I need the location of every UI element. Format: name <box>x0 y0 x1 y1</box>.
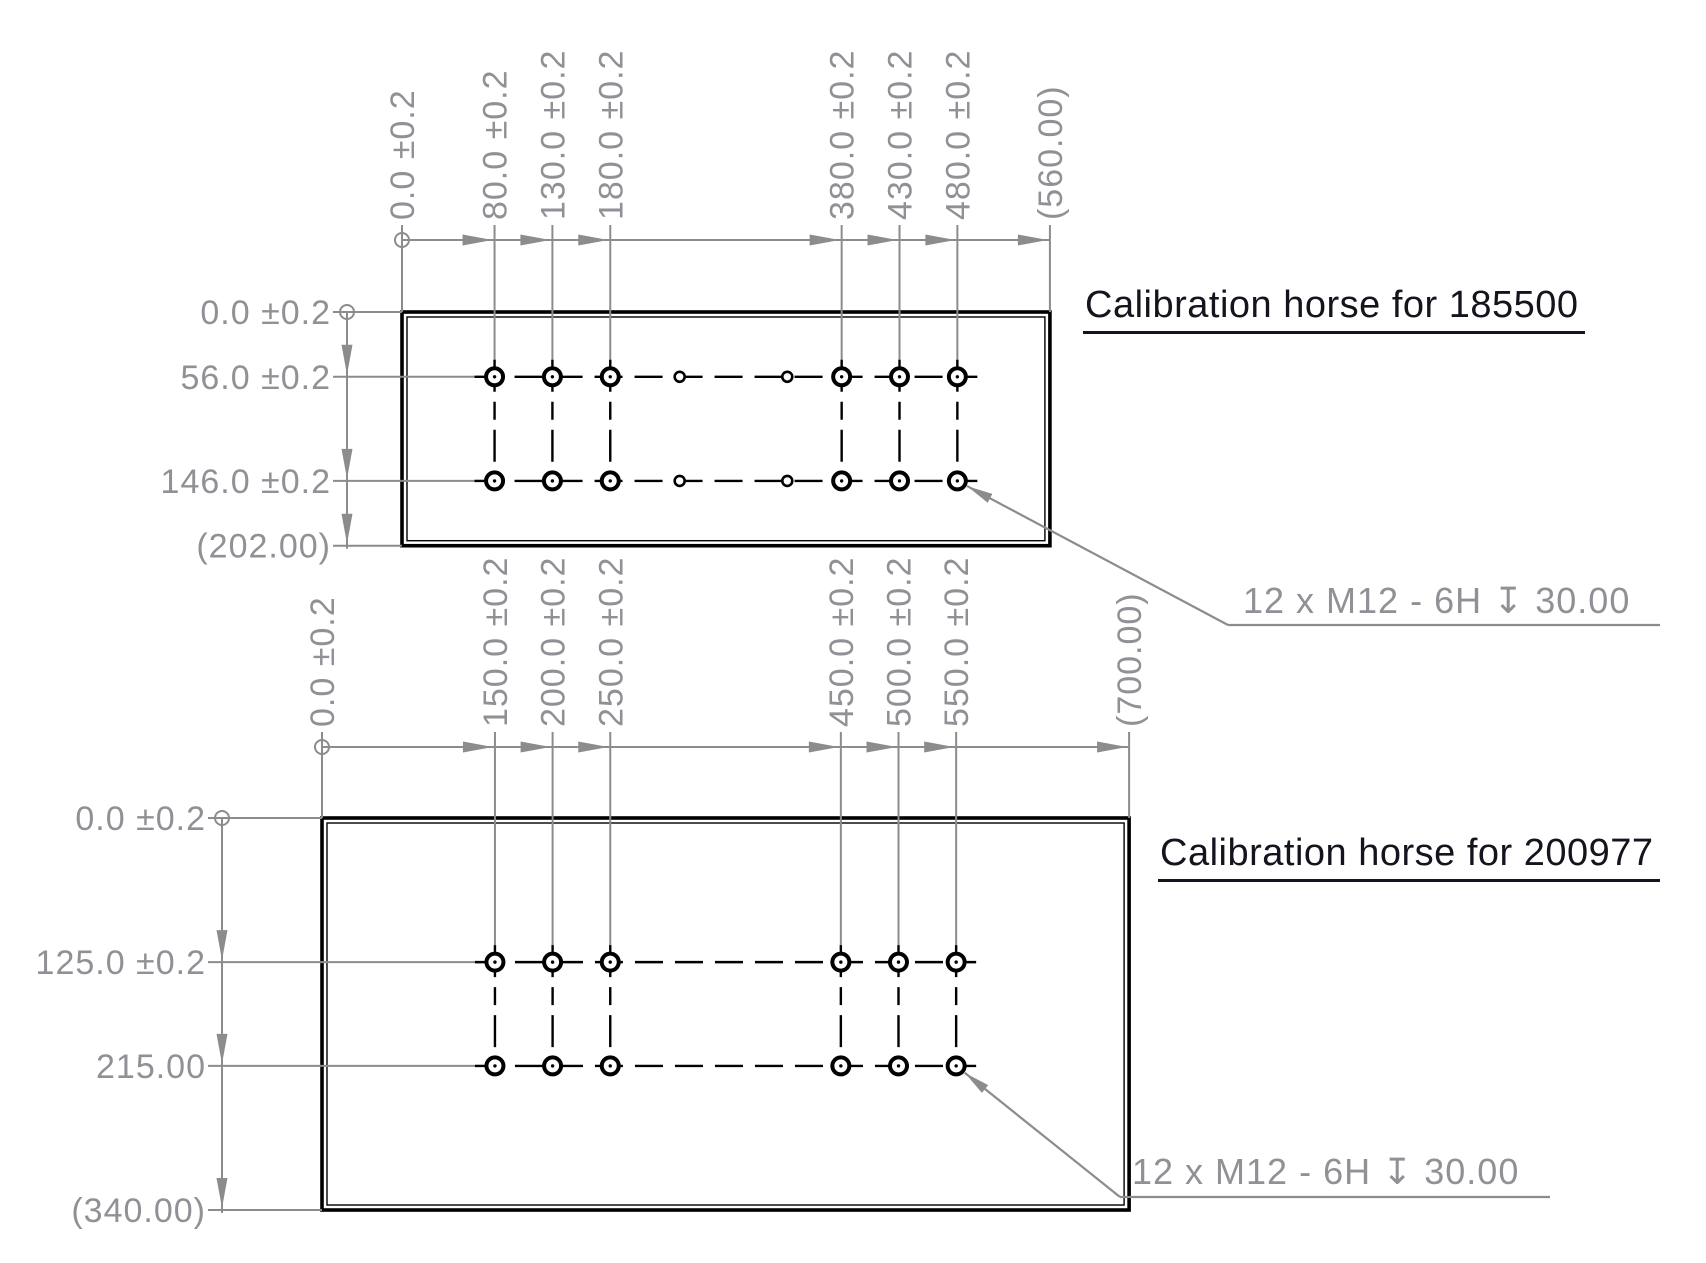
hole-center <box>551 1064 554 1067</box>
dimension-label: 180.0 ±0.2 <box>592 50 630 220</box>
dimension-label: 380.0 ±0.2 <box>824 50 862 220</box>
dimension-label: 0.0 ±0.2 <box>75 800 206 838</box>
small-hole <box>782 372 792 382</box>
hole-center <box>956 375 959 378</box>
dimension-arrowhead <box>868 235 898 246</box>
dimension-arrowhead <box>342 449 353 479</box>
dimension-label: 450.0 ±0.2 <box>823 557 861 727</box>
dimension-arrowhead <box>521 742 551 753</box>
dimension-label: 0.0 ±0.2 <box>384 89 422 220</box>
hole-center <box>897 1064 900 1067</box>
hole-center <box>839 960 842 963</box>
hole-center <box>840 479 843 482</box>
dimension-arrowhead <box>809 742 839 753</box>
dimension-arrowhead <box>463 235 493 246</box>
small-hole <box>675 372 685 382</box>
hole-center <box>954 960 957 963</box>
drawing-canvas: 0.0 ±0.280.0 ±0.2130.0 ±0.2180.0 ±0.2380… <box>0 0 1706 1263</box>
leader-arrowhead <box>967 486 992 503</box>
dimension-label: 550.0 ±0.2 <box>938 557 976 727</box>
dimension-arrowhead <box>342 514 353 544</box>
dimension-arrowhead <box>463 742 493 753</box>
dimension-label: 125.0 ±0.2 <box>36 944 206 982</box>
dimension-arrowhead <box>1097 742 1127 753</box>
hole-center <box>897 960 900 963</box>
plate-inner-line <box>327 823 1124 1205</box>
dimension-label: 146.0 ±0.2 <box>161 463 331 501</box>
dimension-label: 500.0 ±0.2 <box>881 557 919 727</box>
hole-center <box>898 479 901 482</box>
dimension-arrowhead <box>342 345 353 375</box>
dimension-label: (202.00) <box>196 528 331 566</box>
hole-center <box>956 479 959 482</box>
dimension-label: 250.0 ±0.2 <box>592 557 630 727</box>
hole-center <box>609 1064 612 1067</box>
dimension-label: 150.0 ±0.2 <box>477 557 515 727</box>
dimension-label: 0.0 ±0.2 <box>304 596 342 727</box>
dimension-label: (700.00) <box>1111 592 1149 727</box>
dimension-arrowhead <box>520 235 550 246</box>
dimension-arrowhead <box>1018 235 1048 246</box>
thread-callout: 12 x M12 - 6H ↧ 30.00 <box>1243 580 1630 622</box>
leader-line <box>967 486 1228 625</box>
plate-outline <box>402 312 1050 546</box>
dimension-arrowhead <box>217 1178 228 1208</box>
hole-center <box>839 1064 842 1067</box>
dimension-arrowhead <box>217 930 228 960</box>
hole-center <box>493 479 496 482</box>
hole-center <box>551 960 554 963</box>
dimension-arrowhead <box>867 742 897 753</box>
dimension-label: 56.0 ±0.2 <box>180 359 331 397</box>
dimension-arrowhead <box>924 742 954 753</box>
hole-center <box>493 1064 496 1067</box>
drawing-title-185500: Calibration horse for 185500 <box>1083 284 1585 334</box>
technical-drawing-page: 0.0 ±0.280.0 ±0.2130.0 ±0.2180.0 ±0.2380… <box>0 0 1706 1263</box>
plate-inner-line <box>407 317 1045 541</box>
plate-outline <box>322 818 1129 1210</box>
leader-line <box>965 1073 1120 1197</box>
dimension-arrowhead <box>578 742 608 753</box>
hole-center <box>840 375 843 378</box>
dimension-label: 480.0 ±0.2 <box>939 50 977 220</box>
hole-center <box>609 479 612 482</box>
dimension-label: 80.0 ±0.2 <box>477 69 515 220</box>
hole-center <box>609 375 612 378</box>
dimension-arrowhead <box>578 235 608 246</box>
small-hole <box>675 476 685 486</box>
dimension-label: 0.0 ±0.2 <box>200 294 331 332</box>
drawing-title-200977: Calibration horse for 200977 <box>1158 832 1660 882</box>
dimension-arrowhead <box>925 235 955 246</box>
dimension-label: 200.0 ±0.2 <box>535 557 573 727</box>
hole-center <box>493 960 496 963</box>
hole-center <box>551 375 554 378</box>
small-hole <box>782 476 792 486</box>
hole-center <box>954 1064 957 1067</box>
dimension-label: 430.0 ±0.2 <box>882 50 920 220</box>
hole-center <box>609 960 612 963</box>
hole-center <box>551 479 554 482</box>
dimension-arrowhead <box>810 235 840 246</box>
dimension-label: (560.00) <box>1032 85 1070 220</box>
dimension-label: (340.00) <box>71 1192 206 1230</box>
dimension-label: 215.00 <box>96 1048 206 1086</box>
hole-center <box>493 375 496 378</box>
hole-center <box>898 375 901 378</box>
dimension-label: 130.0 ±0.2 <box>534 50 572 220</box>
thread-callout: 12 x M12 - 6H ↧ 30.00 <box>1132 1151 1519 1193</box>
dimension-arrowhead <box>217 1034 228 1064</box>
